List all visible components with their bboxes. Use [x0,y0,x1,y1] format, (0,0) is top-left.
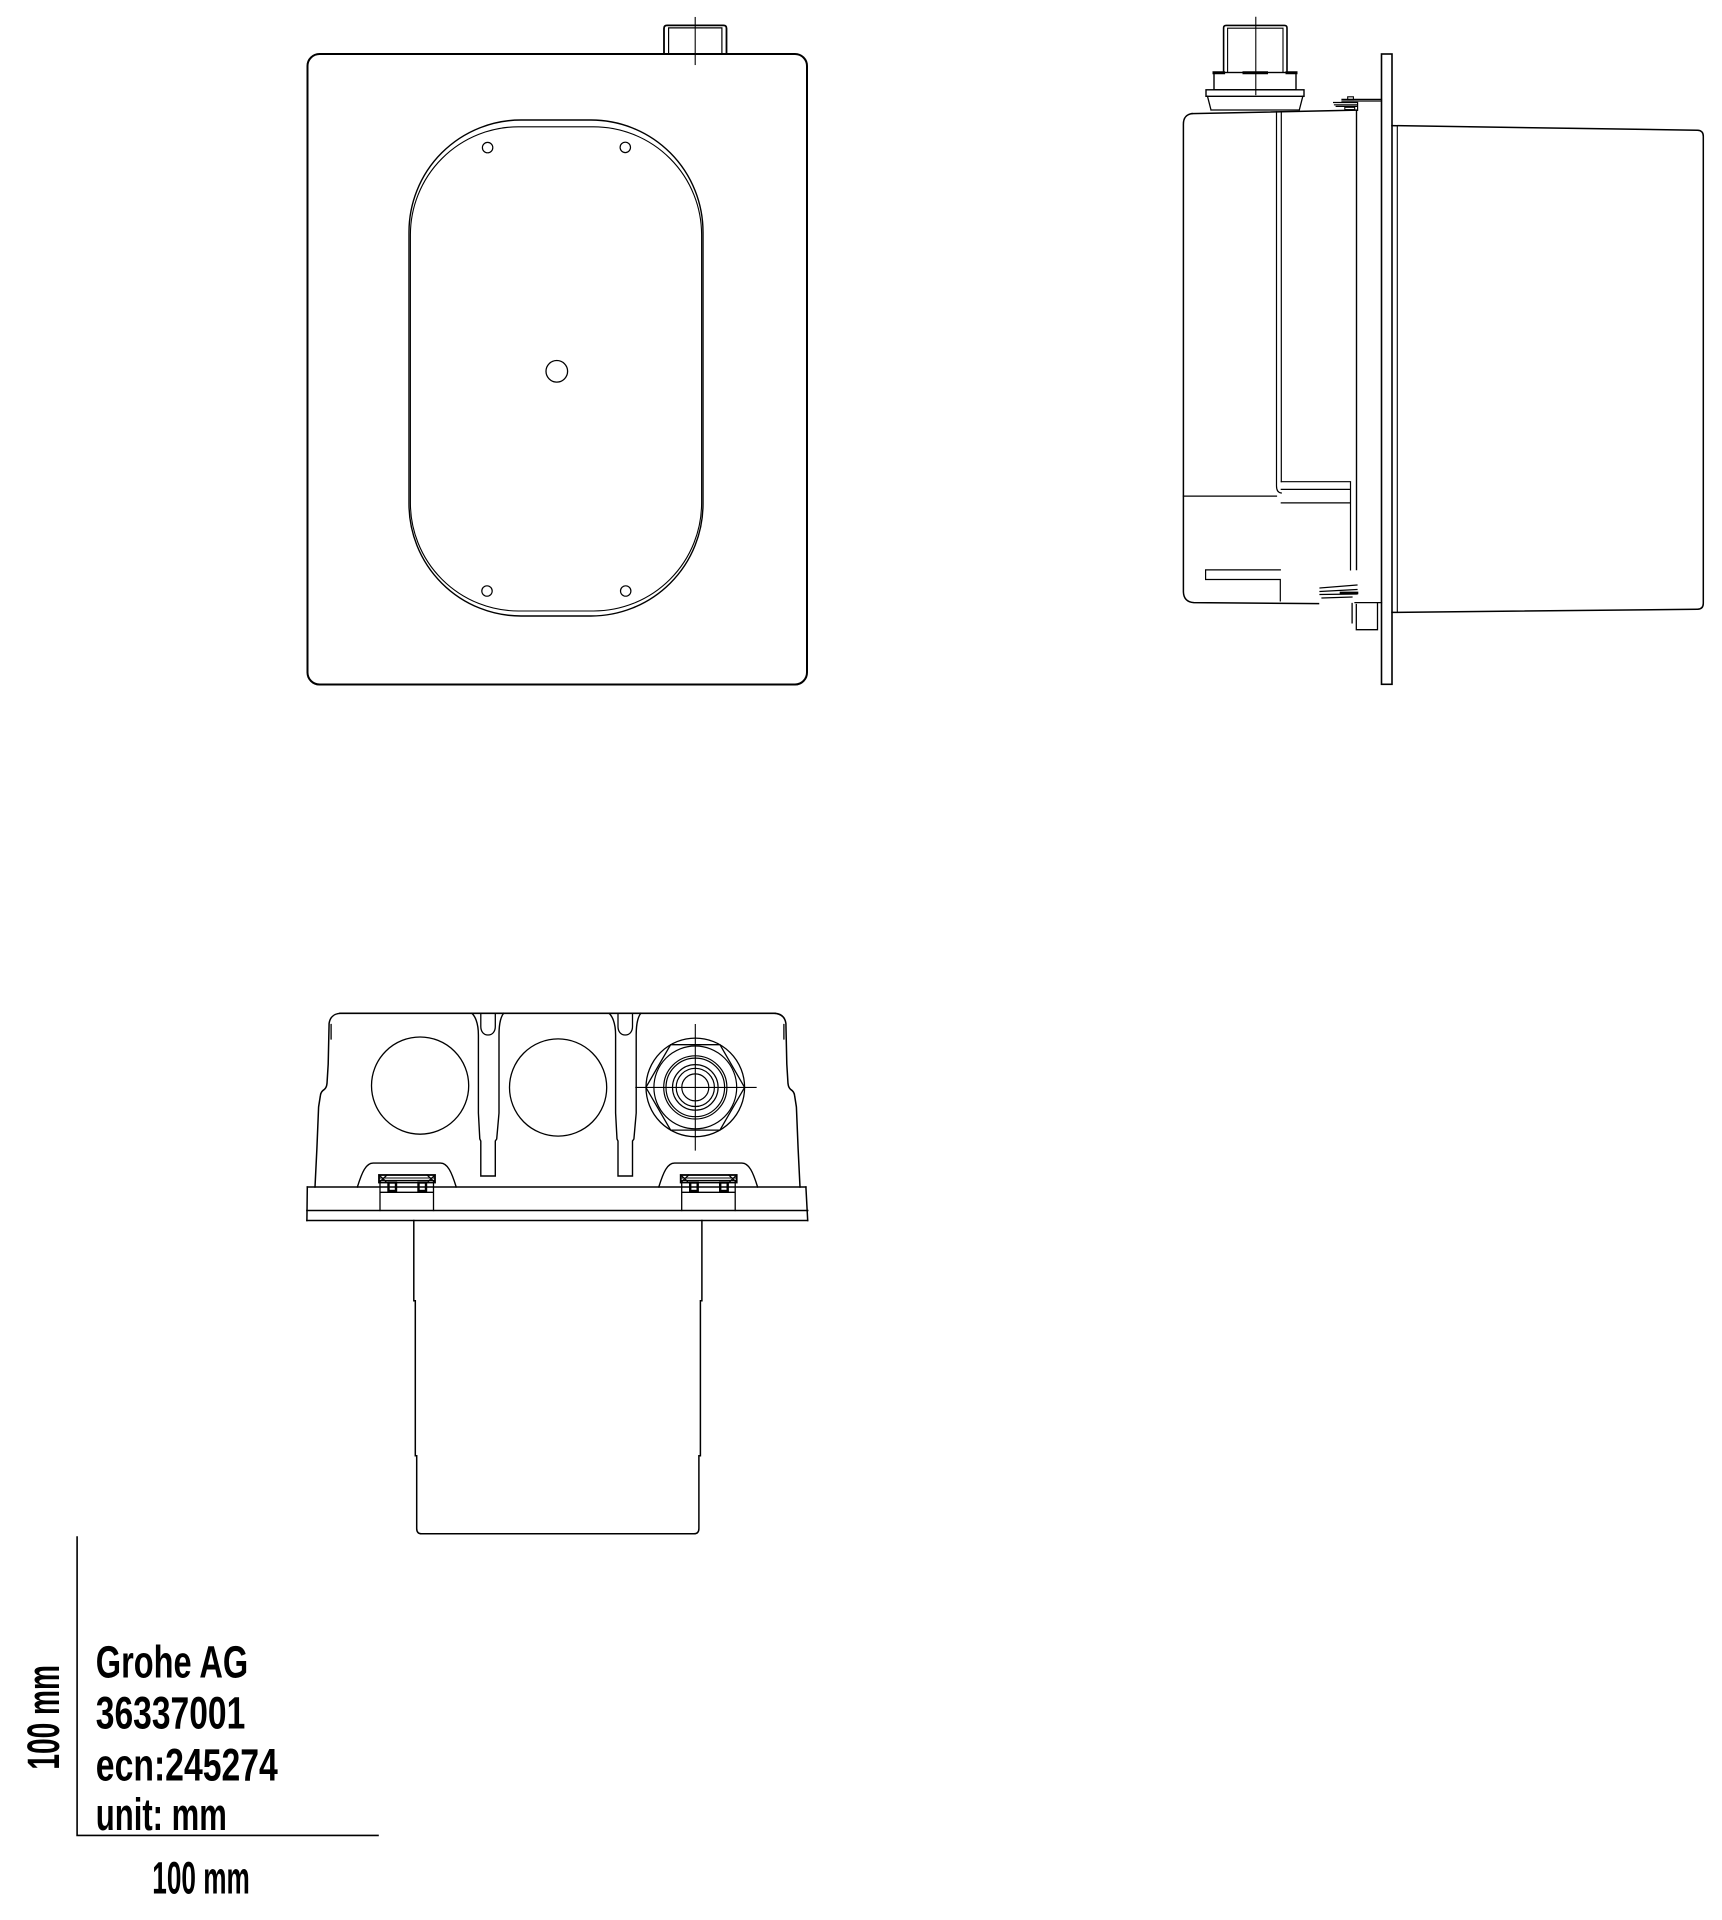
svg-text:unit: mm: unit: mm [96,1790,227,1840]
svg-text:36337001: 36337001 [96,1689,246,1739]
svg-text:100 mm: 100 mm [152,1853,250,1903]
svg-text:Grohe AG: Grohe AG [96,1637,248,1687]
svg-text:100 mm: 100 mm [18,1665,68,1770]
svg-text:ecn:245274: ecn:245274 [96,1741,278,1791]
